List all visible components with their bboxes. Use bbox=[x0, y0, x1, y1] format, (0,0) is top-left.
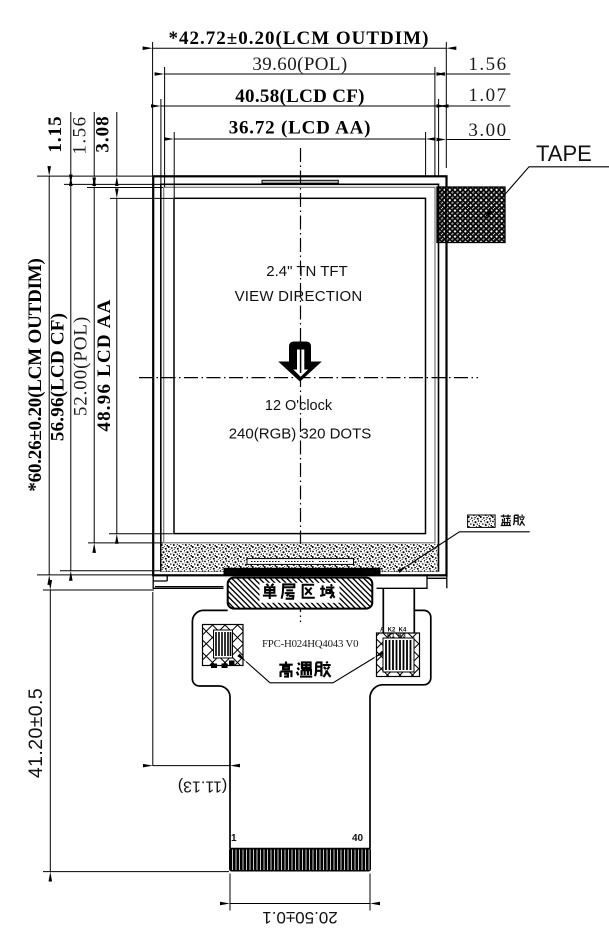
svg-text:240(RGB) 320 DOTS: 240(RGB) 320 DOTS bbox=[229, 426, 372, 443]
svg-text:1.56: 1.56 bbox=[70, 115, 91, 154]
svg-text:K1 K3: K1 K3 bbox=[387, 634, 406, 640]
svg-text:1.07: 1.07 bbox=[468, 85, 507, 106]
svg-text:41.20±0.5: 41.20±0.5 bbox=[25, 688, 47, 778]
svg-text:1: 1 bbox=[231, 833, 237, 844]
svg-text:3.08: 3.08 bbox=[93, 115, 114, 152]
svg-text:MCU: MCU bbox=[226, 570, 238, 576]
svg-text:VIEW DIRECTION: VIEW DIRECTION bbox=[235, 288, 363, 305]
svg-text:TAPE: TAPE bbox=[536, 141, 592, 166]
svg-text:FPC-H024HQ4043 V0: FPC-H024HQ4043 V0 bbox=[262, 638, 358, 650]
svg-text:1.56: 1.56 bbox=[468, 54, 507, 75]
svg-text:20.50±0.1: 20.50±0.1 bbox=[262, 908, 338, 927]
svg-text:*60.26±0.20(LCM OUTDIM): *60.26±0.20(LCM OUTDIM) bbox=[25, 258, 46, 491]
svg-text:XXX: XXX bbox=[363, 570, 374, 576]
svg-text:(11.13): (11.13) bbox=[178, 778, 228, 795]
svg-text:*42.72±0.20(LCM OUTDIM): *42.72±0.20(LCM OUTDIM) bbox=[169, 28, 430, 49]
svg-text:48.96 LCD AA: 48.96 LCD AA bbox=[94, 298, 115, 431]
svg-text:52.00(POL): 52.00(POL) bbox=[71, 316, 92, 416]
svg-text:3.00: 3.00 bbox=[468, 120, 507, 141]
svg-text:36.72 (LCD AA): 36.72 (LCD AA) bbox=[229, 118, 372, 139]
svg-text:2.4" TN TFT: 2.4" TN TFT bbox=[266, 263, 347, 280]
svg-text:39.60(POL): 39.60(POL) bbox=[252, 54, 347, 75]
svg-text:40: 40 bbox=[352, 833, 364, 844]
svg-text:40.58(LCD CF): 40.58(LCD CF) bbox=[235, 86, 365, 107]
svg-text:12 O'clock: 12 O'clock bbox=[265, 398, 333, 414]
svg-text:1.15: 1.15 bbox=[45, 115, 66, 152]
svg-text:56.96(LCD CF): 56.96(LCD CF) bbox=[48, 313, 69, 441]
